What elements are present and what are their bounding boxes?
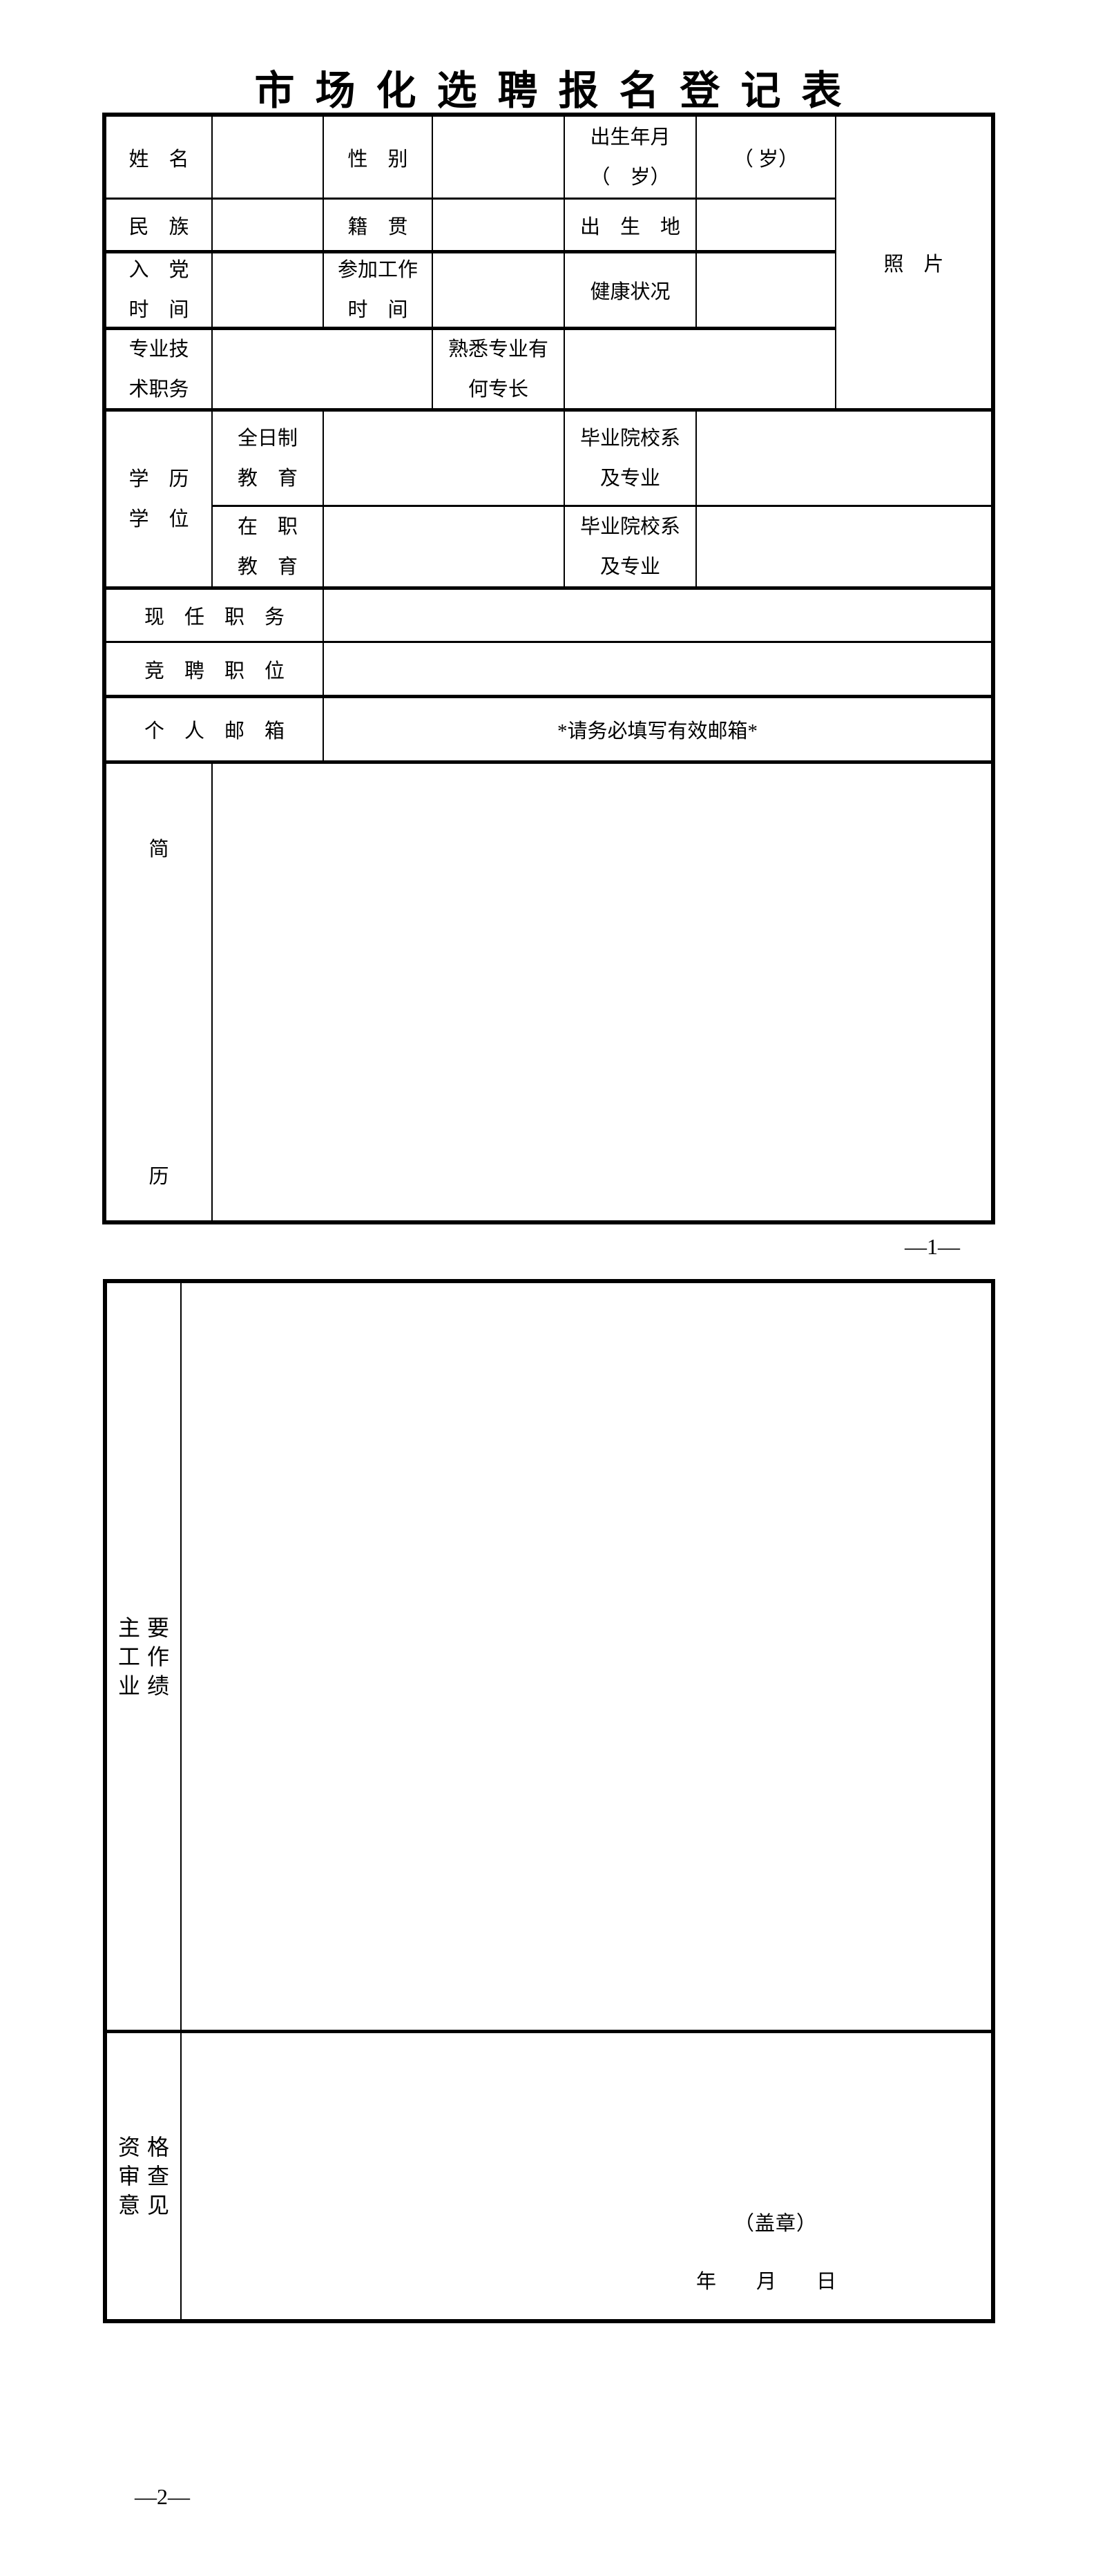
fulltime-education-label: 全日制 教 育 [213,412,324,507]
professional-title-label: 专业技 术职务 [106,330,213,412]
page-number-1: —1— [884,1234,981,1260]
birthplace-label: 出 生 地 [565,200,697,253]
name-value-cell[interactable] [213,117,324,200]
page-title: 市场化选聘报名登记表 [0,58,1096,116]
fulltime-education-value-cell[interactable] [324,412,565,507]
birth-date-label: 出生年月 （ 岁） [565,117,697,200]
current-position-value-cell[interactable] [324,590,991,643]
qualification-review-label: 资格 审查 意见 [107,2033,182,2319]
photo-cell[interactable]: 照 片 [836,117,991,412]
party-join-date-value-cell[interactable] [213,253,324,330]
work-achievements-label: 主要 工作 业绩 [107,1283,182,2033]
resume-label: 简 历 [106,764,213,1220]
work-start-date-value-cell[interactable] [433,253,565,330]
gender-value-cell[interactable] [433,117,565,200]
ethnicity-value-cell[interactable] [213,200,324,253]
party-join-date-label: 入 党 时 间 [106,253,213,330]
native-place-value-cell[interactable] [433,200,565,253]
onjob-school-major-label: 毕业院校系 及专业 [565,507,697,590]
specialty-value-cell[interactable] [565,330,836,412]
native-place-label: 籍 贯 [324,200,433,253]
qualification-review-content-cell[interactable]: （盖章） 年 月 日 [182,2033,991,2319]
seal-placeholder: （盖章） [734,2207,817,2236]
resume-label-top-char: 简 [148,833,169,862]
birthplace-value-cell[interactable] [697,200,836,253]
specialty-label: 熟悉专业有 何专长 [433,330,565,412]
name-label: 姓 名 [106,117,213,200]
education-degree-label: 学 历 学 位 [106,412,213,590]
health-status-label: 健康状况 [565,253,697,330]
gender-label: 性 别 [324,117,433,200]
birth-age-value-cell[interactable]: （ 岁） [697,117,836,200]
professional-title-value-cell[interactable] [213,330,433,412]
registration-table: 姓 名 性 别 出生年月 （ 岁） （ 岁） 照 片 民 族 籍 贯 出 生 地… [102,113,995,1224]
achievements-content-cell[interactable] [182,1283,991,2033]
current-position-label: 现 任 职 务 [106,590,324,643]
applied-position-label: 竞 聘 职 位 [106,643,324,698]
email-value-cell[interactable]: *请务必填写有效邮箱* [324,698,991,764]
fulltime-school-major-label: 毕业院校系 及专业 [565,412,697,507]
resume-content-cell[interactable] [213,764,991,1220]
date-placeholder: 年 月 日 [696,2265,836,2294]
onjob-education-value-cell[interactable] [324,507,565,590]
onjob-school-major-value-cell[interactable] [697,507,991,590]
applied-position-value-cell[interactable] [324,643,991,698]
email-label: 个 人 邮 箱 [106,698,324,764]
page-number-2: —2— [114,2484,211,2510]
resume-label-bottom-char: 历 [148,1160,169,1189]
health-status-value-cell[interactable] [697,253,836,330]
onjob-education-label: 在 职 教 育 [213,507,324,590]
fulltime-school-major-value-cell[interactable] [697,412,991,507]
achievements-review-table: 主要 工作 业绩 资格 审查 意见 （盖章） 年 月 日 [103,1279,995,2323]
ethnicity-label: 民 族 [106,200,213,253]
work-start-date-label: 参加工作 时 间 [324,253,433,330]
form-document-page: 市场化选聘报名登记表 姓 名 性 别 出生年月 （ 岁） （ 岁） 照 片 民 … [0,0,1096,2576]
